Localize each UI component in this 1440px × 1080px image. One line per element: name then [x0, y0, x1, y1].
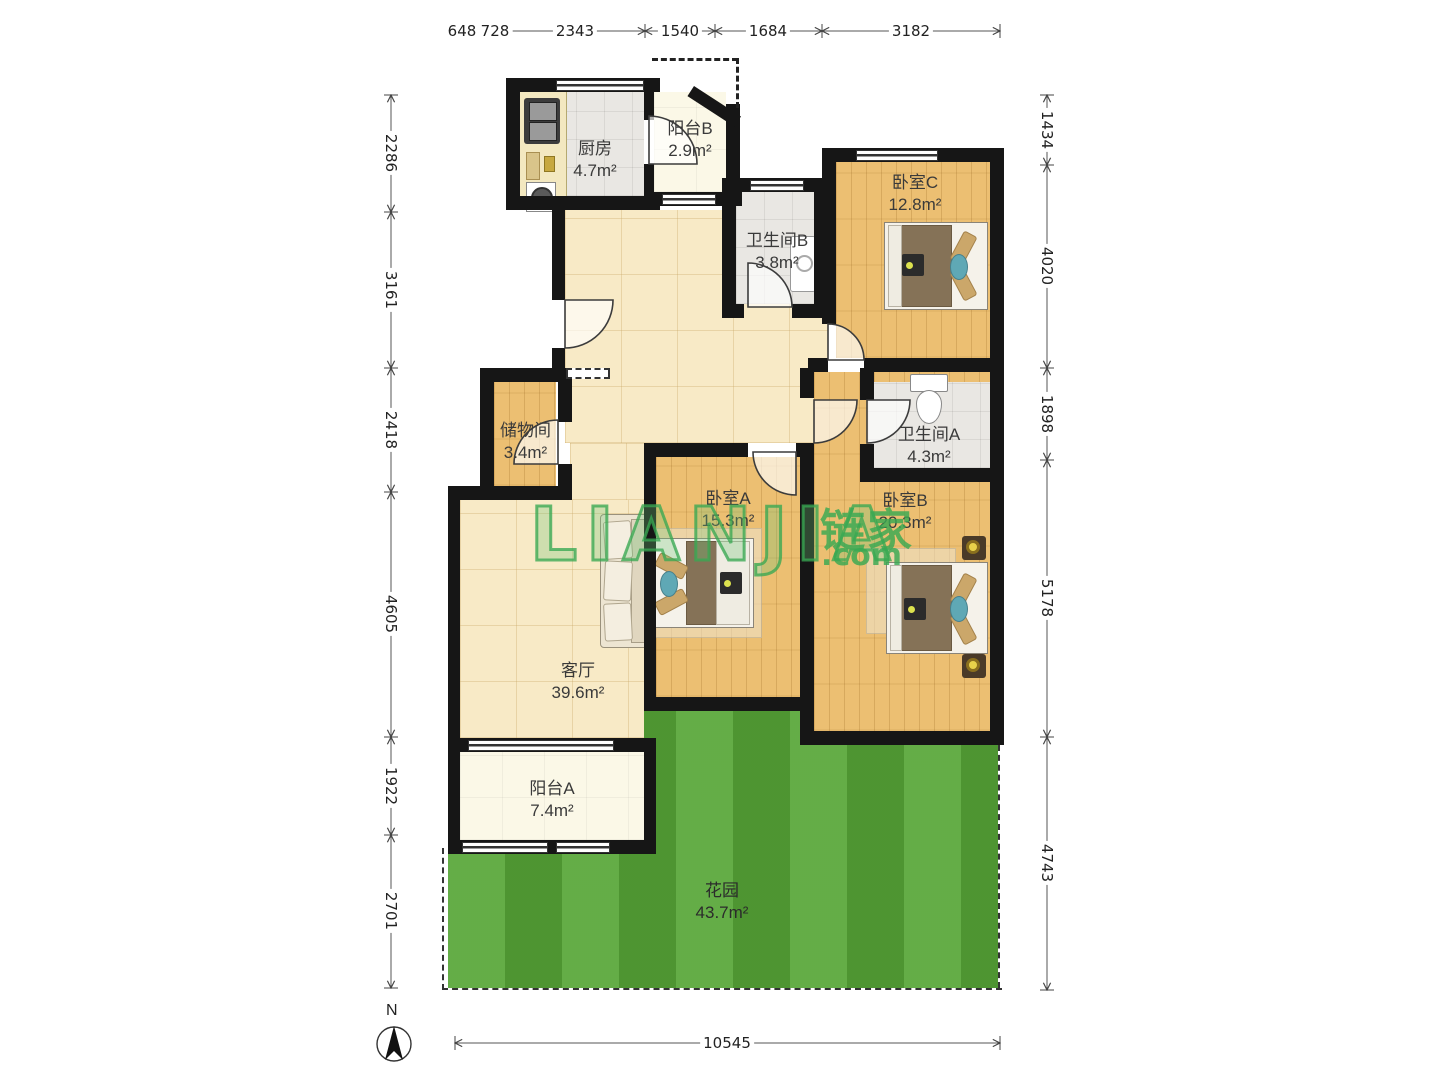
- room-label-garden: 花园43.7m²: [662, 880, 782, 924]
- door-swing: [814, 400, 857, 443]
- room-label-bathroom-a: 卫生间A4.3m²: [874, 424, 984, 468]
- room-label-balcony-a: 阳台A7.4m²: [492, 778, 612, 822]
- door-swing: [828, 324, 864, 360]
- door-swing: [565, 300, 613, 348]
- room-label-bedroom-a: 卧室A15.3m²: [668, 488, 788, 532]
- room-label-living: 客厅39.6m²: [518, 660, 638, 704]
- room-label-balcony-b: 阳台B2.9m²: [640, 118, 740, 162]
- room-label-bedroom-b: 卧室B20.3m²: [845, 490, 965, 534]
- floor-plan: 648 728 2343 1540 1684 3182 2286 3161 24…: [0, 0, 1440, 1080]
- room-label-bedroom-c: 卧室C12.8m²: [855, 172, 975, 216]
- room-label-bathroom-b: 卫生间B3.8m²: [722, 230, 832, 274]
- room-label-kitchen: 厨房4.7m²: [540, 138, 650, 182]
- room-label-storage: 储物间3.4m²: [473, 420, 578, 464]
